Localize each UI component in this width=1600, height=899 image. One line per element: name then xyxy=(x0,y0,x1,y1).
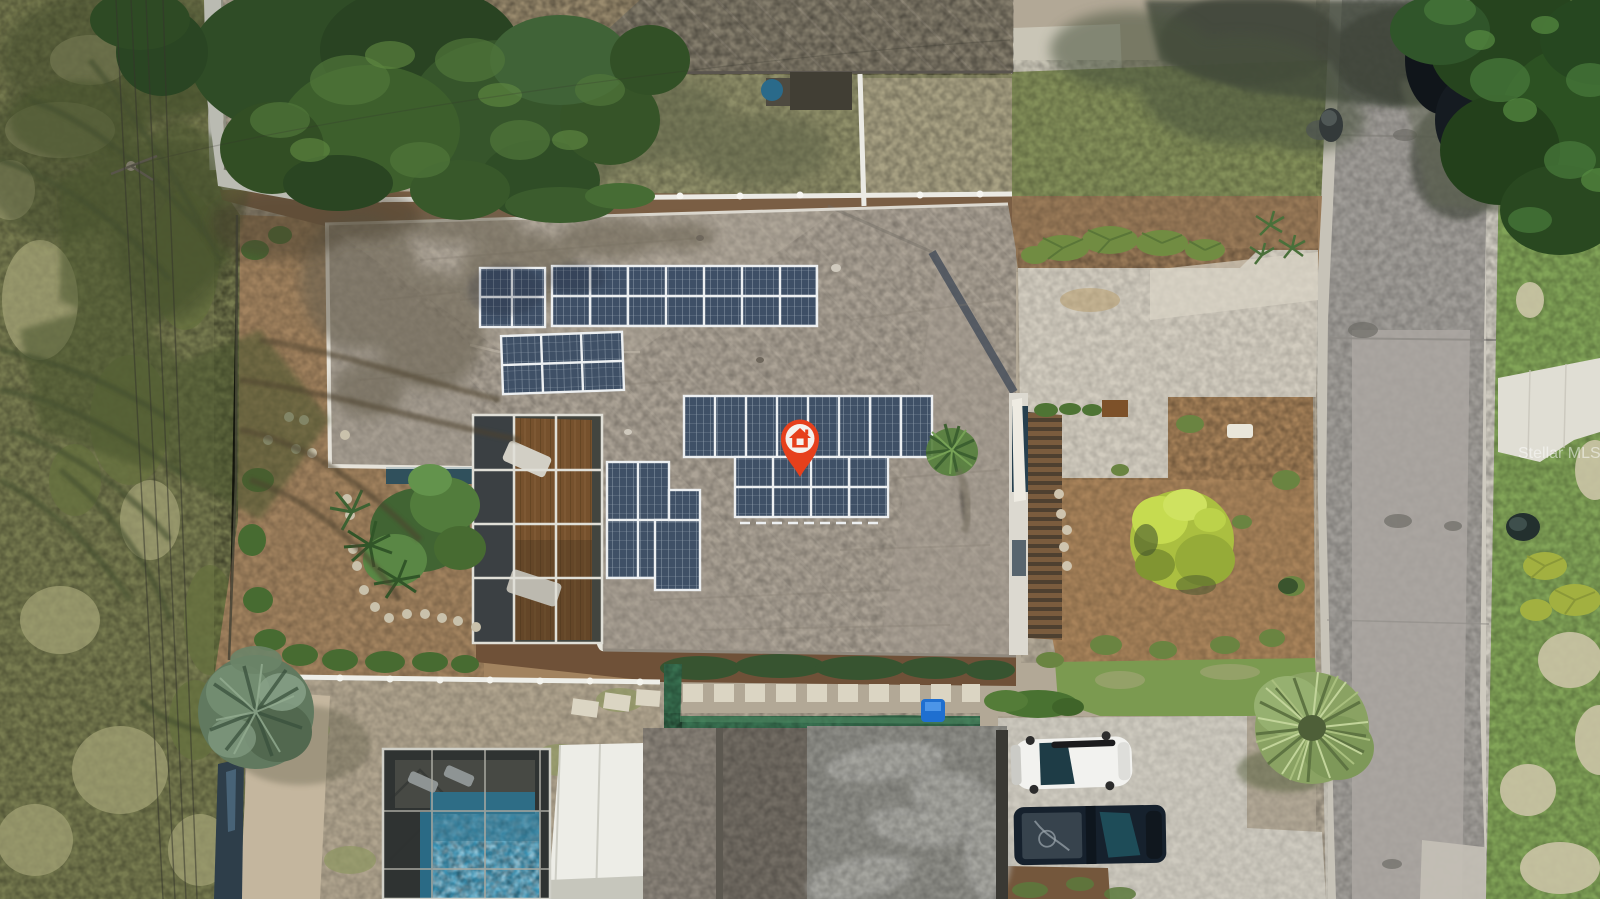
svg-text:Stellar MLS: Stellar MLS xyxy=(1518,445,1600,462)
